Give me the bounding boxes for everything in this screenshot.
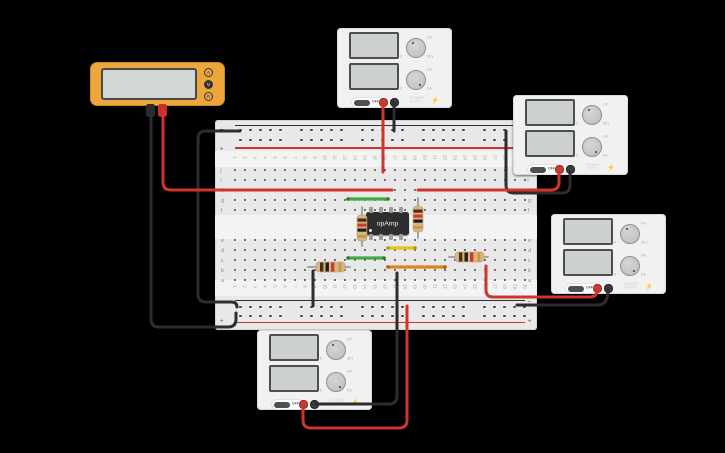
board-hole (444, 269, 447, 272)
column-number: 20 (423, 155, 428, 160)
board-hole (234, 269, 237, 272)
rail-hole (279, 129, 282, 132)
row-label: i (527, 177, 528, 183)
board-hole (484, 239, 487, 242)
board-hole (234, 249, 237, 252)
rail-hole (340, 315, 343, 318)
board-hole (494, 249, 497, 252)
board-hole (414, 189, 417, 192)
column-number: 24 (463, 155, 468, 160)
board-hole (404, 199, 407, 202)
board-hole (344, 209, 347, 212)
board-hole (424, 179, 427, 182)
board-hole (274, 269, 277, 272)
yellow-jumper[interactable] (386, 246, 417, 250)
board-hole (494, 239, 497, 242)
board-hole (434, 209, 437, 212)
psu-toggle-knob (530, 167, 546, 174)
psu-current-knob[interactable] (620, 256, 640, 276)
rail-hole (249, 139, 252, 142)
chip-pin (369, 207, 373, 213)
chip-pin (389, 207, 393, 213)
board-hole (354, 179, 357, 182)
power-supply-right-top[interactable]: 0 V 0 30 V 0 A 0 5 A OFF VOLTAGESUPPLY ⚡ (513, 95, 628, 175)
board-hole (244, 199, 247, 202)
board-hole (294, 209, 297, 212)
board-hole (514, 259, 517, 262)
rail-hole (401, 129, 404, 132)
column-number: 18 (403, 284, 408, 289)
board-hole (314, 199, 317, 202)
board-hole (424, 199, 427, 202)
psu-current-min: 0 (400, 87, 402, 90)
board-hole (434, 199, 437, 202)
board-hole (254, 169, 257, 172)
board-hole (484, 199, 487, 202)
board-hole (434, 239, 437, 242)
psu-voltage-max: 30 V (427, 55, 433, 58)
orange-jumper[interactable] (386, 265, 447, 269)
board-hole (424, 169, 427, 172)
board-hole (244, 259, 247, 262)
psu-current-display (349, 63, 399, 90)
chip-pin (369, 234, 373, 240)
opamp-chip[interactable]: opAmp (366, 212, 409, 235)
board-hole (444, 169, 447, 172)
board-hole (284, 239, 287, 242)
psu-voltage-reading: 0 V (347, 338, 352, 341)
board-hole (434, 249, 437, 252)
board-hole (444, 249, 447, 252)
column-number: 29 (513, 284, 518, 289)
board-hole (384, 209, 387, 212)
board-hole (524, 239, 527, 242)
board-hole (284, 249, 287, 252)
column-number: 3 (253, 284, 258, 289)
psu-voltage-max: 30 V (641, 241, 647, 244)
board-hole (484, 209, 487, 212)
board-hole (514, 269, 517, 272)
rail-hole (249, 306, 252, 309)
rail-hole (493, 139, 496, 142)
board-hole (414, 199, 417, 202)
rail-hole (462, 139, 465, 142)
row-label: d (528, 247, 531, 253)
board-hole (304, 269, 307, 272)
psu-voltage-min: 0 (320, 357, 322, 360)
column-number: 23 (453, 155, 458, 160)
board-hole (314, 239, 317, 242)
green-jumper-top[interactable] (346, 197, 390, 201)
psu-toggle-knob (354, 100, 370, 107)
column-number: 4 (263, 284, 268, 289)
board-hole (284, 209, 287, 212)
board-hole (354, 209, 357, 212)
psu-current-reading: 0 A (641, 254, 646, 257)
board-hole (404, 239, 407, 242)
board-hole (264, 209, 267, 212)
rail-hole (381, 306, 384, 309)
board-hole (394, 269, 397, 272)
board-hole (254, 239, 257, 242)
board-hole (324, 249, 327, 252)
plus-rail-symbol: + (220, 317, 224, 324)
board-hole (234, 169, 237, 172)
rail-hole (381, 315, 384, 318)
psu-current-reading: 0 A (347, 370, 352, 373)
rail-hole (239, 306, 242, 309)
column-number: 3 (253, 155, 258, 160)
rail-hole (310, 315, 313, 318)
psu-voltage-reading: 0 V (427, 36, 432, 39)
board-hole (464, 199, 467, 202)
rail-hole (391, 306, 394, 309)
psu-voltage-display (525, 99, 575, 126)
board-hole (264, 169, 267, 172)
board-hole (314, 169, 317, 172)
column-number: 4 (263, 155, 268, 160)
row-label: a (528, 277, 531, 283)
psu-current-max: 5 A (347, 389, 352, 392)
rail-hole (462, 129, 465, 132)
board-hole (414, 169, 417, 172)
board-hole (404, 179, 407, 182)
rail-hole (422, 306, 425, 309)
board-hole (334, 179, 337, 182)
board-hole (444, 179, 447, 182)
board-hole (464, 249, 467, 252)
board-hole (514, 199, 517, 202)
board-hole (454, 169, 457, 172)
board-hole (284, 199, 287, 202)
board-hole (244, 169, 247, 172)
board-hole (344, 169, 347, 172)
board-hole (454, 199, 457, 202)
column-number: 2 (243, 284, 248, 289)
rail-hole (493, 315, 496, 318)
board-hole (344, 239, 347, 242)
board-hole (274, 179, 277, 182)
board-hole (344, 199, 347, 202)
rail-hole (462, 315, 465, 318)
column-number: 1 (233, 284, 238, 289)
multimeter-screen (101, 68, 197, 100)
rail-hole (279, 306, 282, 309)
board-hole (364, 169, 367, 172)
rail-hole (483, 306, 486, 309)
chip-pin (379, 207, 383, 213)
rail-hole (279, 315, 282, 318)
rail-hole (523, 315, 526, 318)
board-hole (424, 259, 427, 262)
board-hole (514, 209, 517, 212)
board-hole (454, 249, 457, 252)
psu-current-knob[interactable] (582, 137, 602, 157)
board-hole (414, 179, 417, 182)
board-hole (234, 199, 237, 202)
column-number: 15 (373, 284, 378, 289)
board-hole (374, 169, 377, 172)
board-hole (424, 239, 427, 242)
psu-current-knob[interactable] (406, 70, 426, 90)
rail-hole (401, 139, 404, 142)
column-number: 19 (413, 284, 418, 289)
board-hole (244, 249, 247, 252)
column-number: 10 (323, 155, 328, 160)
board-hole (294, 259, 297, 262)
column-number: 7 (293, 284, 298, 289)
rail-hole (452, 315, 455, 318)
board-hole (234, 259, 237, 262)
multimeter-resistance-button[interactable]: R (204, 92, 213, 101)
board-hole (454, 209, 457, 212)
psu-brand-text: VOLTAGESUPPLY (623, 283, 638, 290)
board-hole (404, 189, 407, 192)
board-hole (444, 239, 447, 242)
board-hole (404, 269, 407, 272)
board-hole (364, 249, 367, 252)
board-hole (254, 199, 257, 202)
rail-hole (371, 306, 374, 309)
rail-hole (391, 315, 394, 318)
board-hole (394, 209, 397, 212)
board-hole (424, 209, 427, 212)
board-hole (394, 259, 397, 262)
column-number: 14 (363, 284, 368, 289)
board-hole (254, 209, 257, 212)
board-hole (374, 209, 377, 212)
board-hole (264, 259, 267, 262)
rail-hole (422, 139, 425, 142)
board-hole (324, 209, 327, 212)
lightning-bolt-icon: ⚡ (645, 283, 653, 290)
board-hole (264, 249, 267, 252)
board-hole (334, 199, 337, 202)
column-number: 9 (313, 155, 318, 160)
board-hole (274, 259, 277, 262)
board-hole (404, 259, 407, 262)
column-number: 1 (233, 155, 238, 160)
rail-hole (249, 129, 252, 132)
psu-voltage-display (563, 218, 613, 245)
board-hole (404, 169, 407, 172)
rail-hole (513, 306, 516, 309)
board-hole (324, 259, 327, 262)
board-hole (414, 239, 417, 242)
psu-voltage-knob[interactable] (406, 38, 426, 58)
board-hole (264, 239, 267, 242)
column-number: 5 (273, 155, 278, 160)
board-hole (284, 259, 287, 262)
board-hole (294, 249, 297, 252)
board-hole (294, 269, 297, 272)
board-hole (434, 169, 437, 172)
column-number: 6 (283, 284, 288, 289)
power-supply-right-middle[interactable]: 0 V 0 30 V 0 A 0 5 A OFF VOLTAGESUPPLY ⚡ (551, 214, 666, 294)
psu-voltage-knob[interactable] (582, 105, 602, 125)
rail-hole (361, 315, 364, 318)
board-hole (324, 199, 327, 202)
board-hole (524, 199, 527, 202)
board-hole (314, 179, 317, 182)
board-hole (494, 209, 497, 212)
psu-voltage-knob[interactable] (620, 224, 640, 244)
board-hole (304, 259, 307, 262)
board-hole (244, 239, 247, 242)
rail-hole (320, 129, 323, 132)
board-hole (354, 249, 357, 252)
board-hole (504, 199, 507, 202)
psu-off-label: OFF (292, 402, 299, 406)
board-hole (464, 269, 467, 272)
board-hole (234, 239, 237, 242)
row-label: c (528, 257, 531, 263)
green-jumper-bottom[interactable] (346, 256, 386, 260)
multimeter[interactable]: A V R (90, 62, 225, 106)
row-label: e (221, 237, 224, 243)
column-number: 27 (493, 155, 498, 160)
board-hole (474, 179, 477, 182)
board-hole (484, 169, 487, 172)
rail-hole (320, 306, 323, 309)
rail-hole (442, 306, 445, 309)
row-label: g (221, 197, 224, 203)
board-hole (274, 249, 277, 252)
power-supply-top[interactable]: 0 V 0 30 V 0 A 0 5 A OFF VOLTAGESUPPLY ⚡ (337, 28, 452, 108)
psu-voltage-display (349, 32, 399, 59)
row-label: f (221, 207, 223, 213)
board-hole (284, 269, 287, 272)
psu-off-label: OFF (372, 100, 379, 104)
board-hole (244, 269, 247, 272)
board-hole (454, 179, 457, 182)
row-label: c (221, 257, 224, 263)
rail-hole (300, 315, 303, 318)
rail-hole (493, 306, 496, 309)
rail-hole (239, 139, 242, 142)
plus-rail-line (235, 147, 525, 149)
board-hole (474, 239, 477, 242)
rail-hole (483, 129, 486, 132)
board-hole (394, 179, 397, 182)
board-hole (304, 249, 307, 252)
rail-hole (513, 315, 516, 318)
rail-hole (503, 306, 506, 309)
column-number: 14 (363, 155, 368, 160)
psu-current-knob[interactable] (326, 372, 346, 392)
psu-voltage-display (269, 334, 319, 361)
board-hole (254, 269, 257, 272)
board-hole (294, 169, 297, 172)
board-hole (334, 169, 337, 172)
board-hole (304, 169, 307, 172)
rail-hole (432, 139, 435, 142)
board-hole (524, 179, 527, 182)
chip-pin1-marker (369, 229, 372, 232)
column-number: 5 (273, 284, 278, 289)
board-hole (264, 179, 267, 182)
psu-current-max: 5 A (603, 154, 608, 157)
column-number: 24 (463, 284, 468, 289)
row-label: a (221, 277, 224, 283)
column-number: 28 (503, 284, 508, 289)
board-hole (384, 179, 387, 182)
psu-current-min: 0 (614, 273, 616, 276)
column-number: 17 (393, 155, 398, 160)
board-hole (244, 209, 247, 212)
rail-hole (300, 129, 303, 132)
psu-toggle-knob (568, 286, 584, 293)
rail-hole (452, 306, 455, 309)
board-hole (434, 179, 437, 182)
plus-rail-symbol: + (528, 317, 532, 324)
board-hole (254, 179, 257, 182)
plus-rail-line (235, 322, 525, 324)
multimeter-amps-button[interactable]: A (204, 68, 213, 77)
rail-hole (371, 139, 374, 142)
column-number: 8 (303, 284, 308, 289)
column-number: 6 (283, 155, 288, 160)
board-hole (334, 259, 337, 262)
board-hole (344, 259, 347, 262)
row-label: d (221, 247, 224, 253)
board-hole (304, 239, 307, 242)
board-hole (454, 239, 457, 242)
board-hole (304, 209, 307, 212)
board-hole (394, 239, 397, 242)
board-hole (394, 189, 397, 192)
board-hole (284, 179, 287, 182)
chip-pin (379, 234, 383, 240)
psu-current-reading: 0 A (603, 135, 608, 138)
board-hole (464, 179, 467, 182)
rail-hole (442, 315, 445, 318)
column-number: 19 (413, 155, 418, 160)
psu-voltage-min: 0 (400, 55, 402, 58)
board-hole (504, 269, 507, 272)
psu-current-max: 5 A (427, 87, 432, 90)
circuit-canvas: −−++−−++11223344556677889910101111121213… (0, 0, 725, 453)
chip-pin (389, 234, 393, 240)
psu-voltage-knob[interactable] (326, 340, 346, 360)
board-hole (444, 209, 447, 212)
column-number: 7 (293, 155, 298, 160)
board-hole (414, 259, 417, 262)
rail-hole (361, 129, 364, 132)
rail-hole (310, 139, 313, 142)
psu-voltage-reading: 0 V (641, 222, 646, 225)
column-number: 2 (243, 155, 248, 160)
multimeter-volts-button[interactable]: V (204, 80, 213, 89)
board-hole (314, 259, 317, 262)
rail-hole (493, 129, 496, 132)
rail-hole (340, 129, 343, 132)
board-hole (484, 179, 487, 182)
board-hole (334, 239, 337, 242)
power-supply-bottom[interactable]: 0 V 0 30 V 0 A 0 5 A OFF VOLTAGESUPPLY ⚡ (257, 330, 372, 410)
minus-rail-line (235, 125, 525, 127)
board-hole (344, 179, 347, 182)
board-hole (244, 179, 247, 182)
column-number: 25 (473, 155, 478, 160)
board-hole (304, 179, 307, 182)
column-number: 20 (423, 284, 428, 289)
psu-current-display (269, 365, 319, 392)
board-hole (444, 199, 447, 202)
rail-hole (259, 306, 262, 309)
board-hole (374, 269, 377, 272)
rail-hole (249, 315, 252, 318)
